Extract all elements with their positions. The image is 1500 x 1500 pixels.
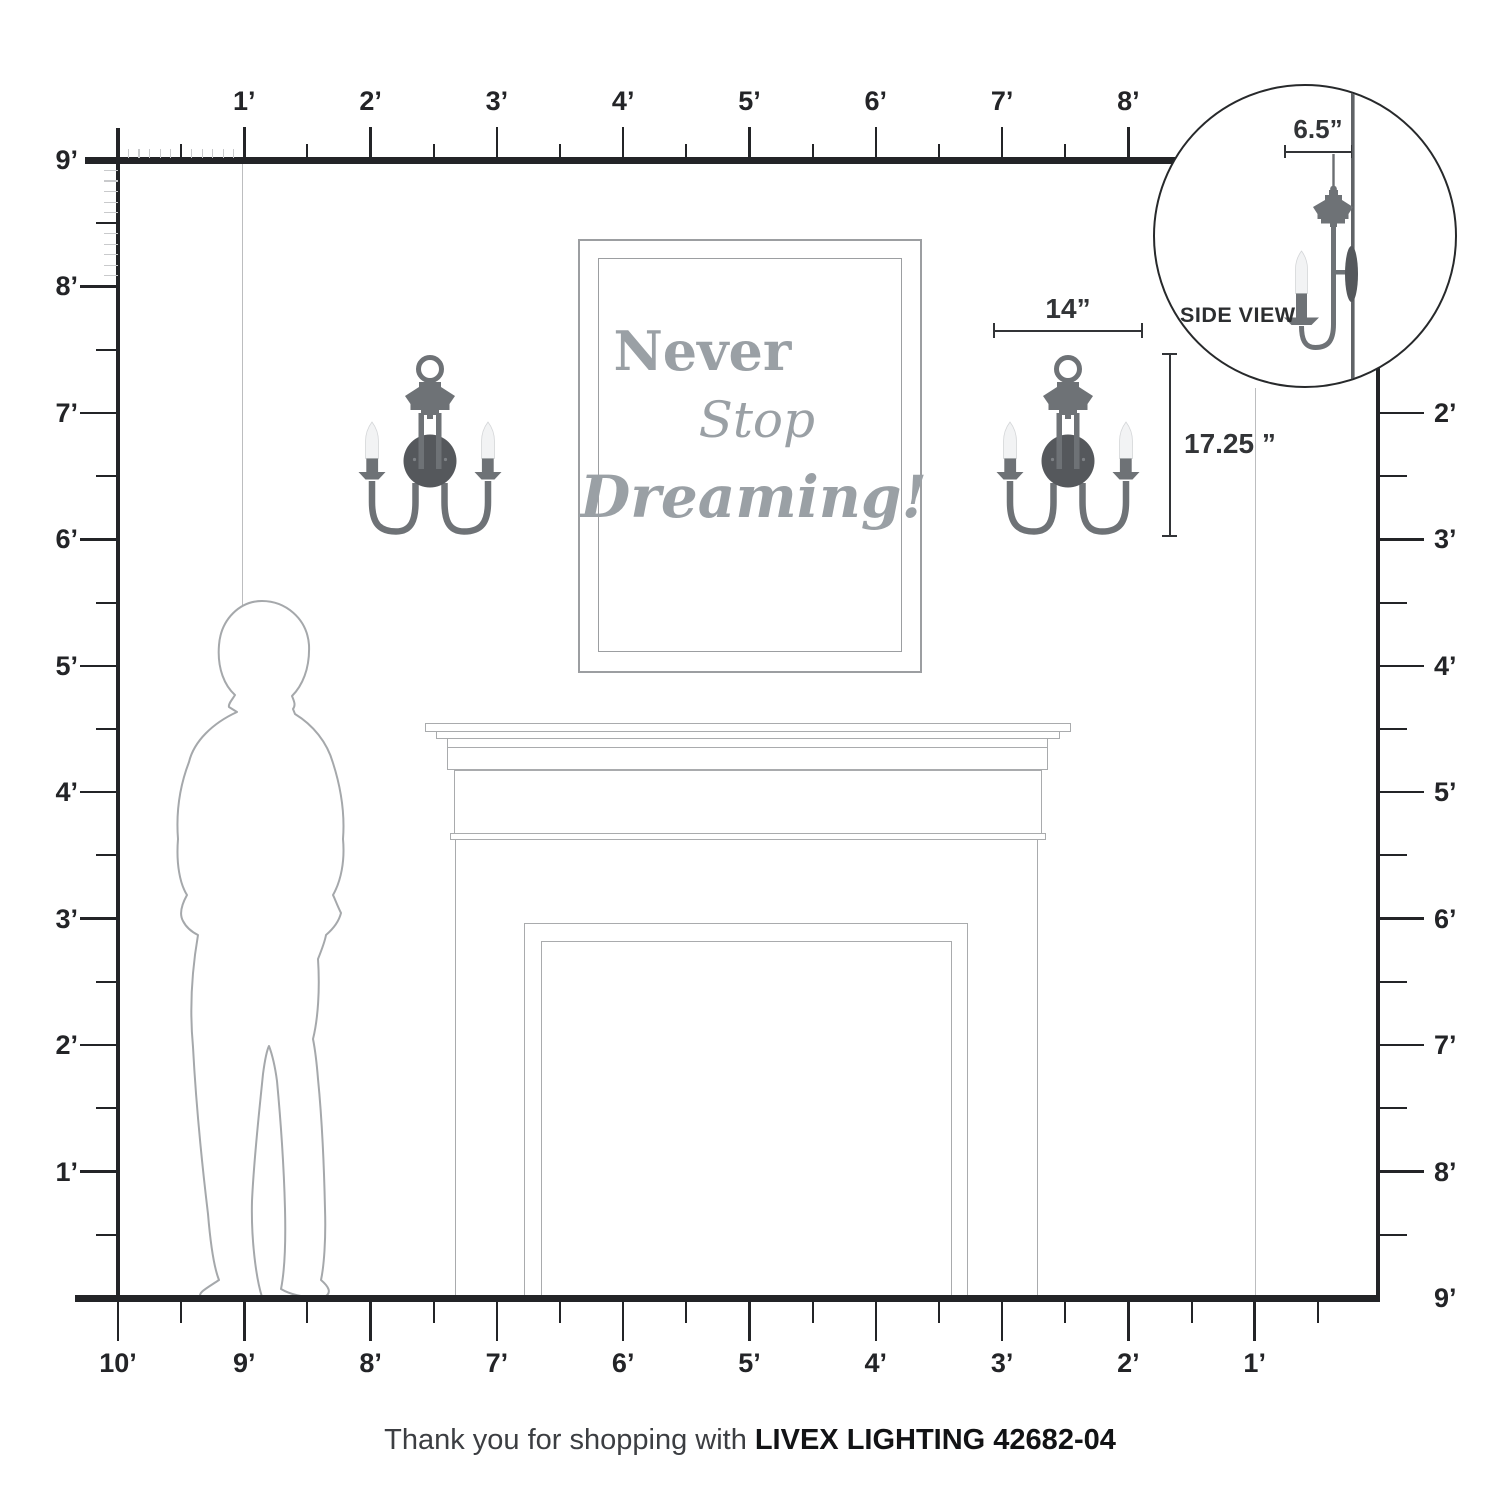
ruler-tick: [685, 144, 687, 160]
height-dimension-label: 17.25 ”: [1184, 428, 1276, 460]
ruler-inch-tick: [104, 180, 118, 181]
ruler-label: 8’: [30, 271, 78, 301]
ruler-label: 7’: [1434, 1030, 1494, 1060]
ruler-label: 3’: [1434, 524, 1494, 554]
ruler-tick: [433, 1302, 435, 1323]
ruler-tick: [80, 412, 118, 415]
ruler-tick: [96, 349, 118, 351]
ruler-tick: [938, 144, 940, 160]
ruler-label: 7’: [970, 86, 1034, 116]
ruler-tick: [1380, 917, 1424, 920]
depth-dimension-label: 6.5”: [1273, 114, 1363, 145]
ruler-inch-tick: [170, 149, 171, 158]
ruler-tick: [1191, 1302, 1193, 1323]
ruler-label: 8’: [1096, 86, 1160, 116]
ruler-tick: [80, 1044, 118, 1047]
side-view-label: SIDE VIEW: [1180, 303, 1300, 328]
ruler-label: 5’: [30, 651, 78, 681]
ruler-label: 3’: [970, 1348, 1034, 1378]
ruler-tick: [96, 1234, 118, 1236]
ruler-inch-tick: [149, 149, 150, 158]
ruler-inch-tick: [104, 233, 118, 234]
ruler-tick: [1380, 854, 1407, 856]
ruler-tick: [1380, 1234, 1407, 1236]
ruler-label: 1’: [30, 1157, 78, 1187]
wall-sconce-left: [355, 353, 505, 537]
ruler-label: 5’: [718, 86, 782, 116]
ruler-tick: [1380, 1044, 1424, 1047]
ruler-label: 4’: [1434, 651, 1494, 681]
ruler-tick: [1380, 665, 1424, 668]
ruler-tick: [1001, 1302, 1004, 1341]
ruler-label: 2’: [1096, 1348, 1160, 1378]
left-ruler-line: [116, 128, 120, 1302]
artwork-text-line1: Never: [580, 319, 825, 383]
ruler-label: 6’: [1434, 904, 1494, 934]
ruler-label: 9’: [212, 1348, 276, 1378]
ruler-tick: [1317, 1302, 1319, 1323]
ruler-tick: [96, 854, 118, 856]
ruler-label: 2’: [1434, 398, 1494, 428]
ruler-label: 5’: [1434, 777, 1494, 807]
ruler-label: 2’: [30, 1030, 78, 1060]
side-view-inset: 6.5” SIDE VIEW: [1153, 84, 1457, 388]
ruler-tick: [80, 665, 118, 668]
ruler-tick: [559, 144, 561, 160]
ruler-tick: [812, 144, 814, 160]
ruler-tick: [306, 1302, 308, 1323]
ruler-tick: [96, 602, 118, 604]
ruler-tick: [938, 1302, 940, 1323]
ruler-label: 3’: [465, 86, 529, 116]
artwork-text-line2: Stop: [621, 391, 893, 449]
ruler-tick: [1380, 1107, 1407, 1109]
ruler-tick: [1380, 538, 1424, 541]
ruler-tick: [96, 475, 118, 477]
ruler-inch-tick: [104, 202, 118, 203]
ruler-inch-tick: [104, 170, 118, 171]
artwork-text-line3: Dreaming!: [580, 463, 920, 531]
ruler-tick: [559, 1302, 561, 1323]
ruler-inch-tick: [223, 149, 224, 158]
ruler-tick: [1253, 1302, 1256, 1341]
footer-brand-model: LIVEX LIGHTING 42682-04: [755, 1424, 1116, 1456]
ruler-inch-tick: [191, 149, 192, 158]
ruler-tick: [496, 127, 499, 160]
ruler-label: 7’: [30, 398, 78, 428]
wall-art-frame: Never Stop Dreaming!: [578, 239, 922, 673]
ruler-tick: [875, 127, 878, 160]
ruler-tick: [1127, 1302, 1130, 1341]
ruler-tick: [622, 1302, 625, 1341]
ruler-tick: [369, 1302, 372, 1341]
ruler-tick: [496, 1302, 499, 1341]
ruler-tick: [180, 1302, 182, 1323]
wall-reference-line-right: [1255, 388, 1256, 1298]
fireplace-frieze: [454, 770, 1042, 834]
ruler-tick: [1064, 1302, 1066, 1323]
ruler-tick: [1380, 981, 1407, 983]
ruler-inch-tick: [202, 149, 203, 158]
ruler-inch-tick: [160, 149, 161, 158]
ruler-label: 8’: [339, 1348, 403, 1378]
ruler-tick: [748, 127, 751, 160]
ruler-inch-tick: [104, 254, 118, 255]
ruler-inch-tick: [104, 191, 118, 192]
fireplace-frieze-band: [450, 833, 1046, 840]
ruler-label: 4’: [844, 1348, 908, 1378]
ruler-tick: [80, 1170, 118, 1173]
ruler-tick: [243, 127, 246, 160]
ruler-label: 8’: [1434, 1157, 1494, 1187]
ruler-tick: [1380, 1170, 1424, 1173]
ruler-label: 4’: [591, 86, 655, 116]
ruler-tick: [96, 981, 118, 983]
ruler-tick: [306, 144, 308, 160]
ruler-tick: [433, 144, 435, 160]
ruler-tick: [812, 1302, 814, 1323]
firebox-opening: [541, 941, 952, 1298]
ruler-tick: [1380, 475, 1407, 477]
wall-art-mat: [598, 258, 902, 652]
ruler-label: 1’: [212, 86, 276, 116]
ruler-label: 4’: [30, 777, 78, 807]
width-dimension-label: 14”: [1018, 293, 1118, 325]
ruler-label: 3’: [30, 904, 78, 934]
ruler-inch-tick: [104, 244, 118, 245]
ruler-label: 9’: [1434, 1283, 1494, 1313]
ruler-tick: [875, 1302, 878, 1341]
ruler-label: 5’: [718, 1348, 782, 1378]
footer-caption: Thank you for shopping withLIVEX LIGHTIN…: [0, 1424, 1500, 1457]
ceiling-line: [85, 157, 1180, 164]
ruler-inch-tick: [104, 275, 118, 276]
ruler-tick: [96, 222, 118, 224]
person-silhouette: [165, 598, 365, 1299]
ruler-label: 1’: [1223, 1348, 1287, 1378]
ruler-tick: [685, 1302, 687, 1323]
ruler-tick: [1380, 602, 1407, 604]
scale-diagram: Never Stop Dreaming!: [0, 0, 1500, 1500]
ruler-inch-tick: [233, 149, 234, 158]
ruler-tick: [96, 728, 118, 730]
ruler-label: 6’: [591, 1348, 655, 1378]
ruler-tick: [117, 1302, 120, 1341]
ruler-inch-tick: [104, 212, 118, 213]
ruler-tick: [1380, 728, 1407, 730]
ruler-tick: [80, 285, 118, 288]
ruler-label: 6’: [844, 86, 908, 116]
ruler-tick: [80, 917, 118, 920]
ruler-tick: [1380, 791, 1424, 794]
footer-thanks-text: Thank you for shopping with: [384, 1424, 747, 1456]
ruler-tick: [80, 538, 118, 541]
ruler-label: 2’: [339, 86, 403, 116]
ruler-tick: [369, 127, 372, 160]
ruler-inch-tick: [138, 149, 139, 158]
ruler-tick: [243, 1302, 246, 1341]
fireplace-crown-molding: [447, 738, 1048, 770]
ruler-tick: [1127, 127, 1130, 160]
ruler-inch-tick: [128, 149, 129, 158]
ruler-tick: [1064, 144, 1066, 160]
ruler-inch-tick: [212, 149, 213, 158]
ruler-tick: [96, 1107, 118, 1109]
floor-line: [75, 1295, 1380, 1302]
ruler-tick: [180, 144, 182, 160]
ruler-tick: [622, 127, 625, 160]
ruler-inch-tick: [104, 265, 118, 266]
ruler-label: 10’: [86, 1348, 150, 1378]
ruler-tick: [748, 1302, 751, 1341]
ruler-label: 6’: [30, 524, 78, 554]
ruler-label: 7’: [465, 1348, 529, 1378]
ruler-tick: [80, 791, 118, 794]
wall-sconce-right: [993, 353, 1143, 537]
ruler-label: 9’: [30, 145, 78, 175]
ruler-tick: [1380, 412, 1424, 415]
ruler-tick: [1001, 127, 1004, 160]
